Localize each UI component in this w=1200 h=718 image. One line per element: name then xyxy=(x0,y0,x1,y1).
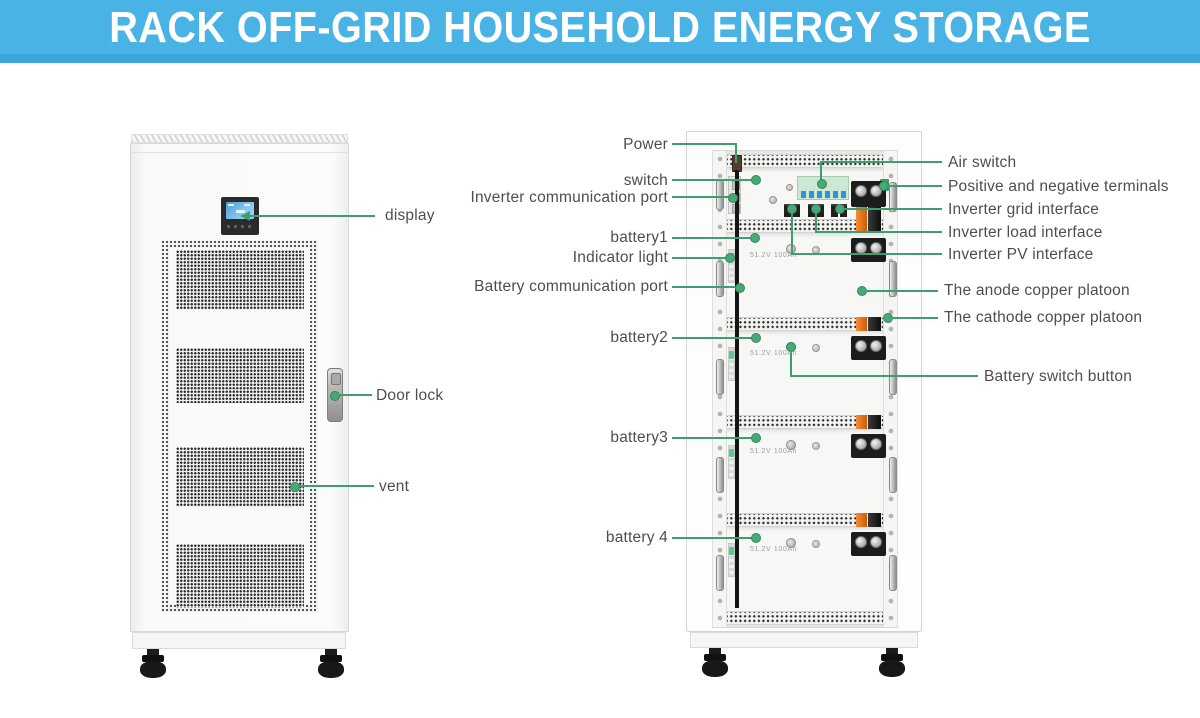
screw xyxy=(769,196,777,204)
vent-strip xyxy=(727,611,883,625)
banner-accent-strip xyxy=(0,54,1200,63)
leader-line xyxy=(672,179,752,181)
screw xyxy=(812,344,820,352)
communication-cable xyxy=(735,170,739,608)
caster-foot xyxy=(316,649,346,679)
leader-line xyxy=(340,394,372,396)
air-switch-callout-dot xyxy=(817,179,827,189)
leader-line xyxy=(892,317,938,319)
battery-terminal xyxy=(851,336,886,360)
leader-line xyxy=(672,257,727,259)
indicator-light xyxy=(729,547,734,555)
rack-handle xyxy=(716,555,724,591)
label-anode: The anode copper platoon xyxy=(944,282,1130,300)
page-title: RACK OFF-GRID HOUSEHOLD ENERGY STORAGE xyxy=(60,0,1140,54)
leader-line xyxy=(820,161,942,163)
display-buttons xyxy=(227,225,253,228)
leader-line xyxy=(300,485,374,487)
vent-panel-1 xyxy=(176,250,304,310)
rack-handle xyxy=(889,457,897,493)
label-inverter-comm-port: Inverter communication port xyxy=(470,189,668,207)
leader-line xyxy=(791,211,793,255)
leader-line xyxy=(672,237,751,239)
leader-line xyxy=(672,196,730,198)
leader-line xyxy=(866,290,938,292)
screw xyxy=(812,442,820,450)
rack-handle xyxy=(889,555,897,591)
caster-foot xyxy=(877,648,907,678)
caster-foot xyxy=(700,648,730,678)
battery4-callout-dot xyxy=(751,533,761,543)
leader-line xyxy=(815,231,942,233)
label-battery4: battery 4 xyxy=(606,529,668,547)
leader-line xyxy=(672,537,753,539)
label-battery1: battery1 xyxy=(610,229,668,247)
label-terminals: Positive and negative terminals xyxy=(948,178,1169,196)
battery2-callout-dot xyxy=(751,333,761,343)
label-grid-interface: Inverter grid interface xyxy=(948,201,1099,219)
battery-comm-callout-dot xyxy=(735,283,745,293)
label-vent: vent xyxy=(379,478,409,496)
door-lock-callout-dot xyxy=(330,391,340,401)
leader-line xyxy=(672,337,753,339)
leader-line xyxy=(248,215,375,217)
indicator-light xyxy=(729,449,734,457)
vent-callout-dot xyxy=(290,482,300,492)
vent-panel-4 xyxy=(176,544,304,608)
vent-panel-3 xyxy=(176,447,304,507)
vent-panel-2 xyxy=(176,348,304,403)
rack-handle xyxy=(716,180,724,210)
label-battery-switch: Battery switch button xyxy=(984,368,1132,386)
rack-handle xyxy=(716,359,724,395)
leader-line xyxy=(790,375,978,377)
screw xyxy=(786,184,793,191)
label-power: Power xyxy=(623,136,668,154)
leader-line xyxy=(815,211,817,233)
label-air-switch: Air switch xyxy=(948,154,1016,172)
page: RACK OFF-GRID HOUSEHOLD ENERGY STORAGE xyxy=(0,0,1200,718)
label-display: display xyxy=(385,207,435,225)
battery-terminal xyxy=(851,238,886,262)
label-pv-interface: Inverter PV interface xyxy=(948,246,1094,264)
indicator-light xyxy=(729,351,734,359)
screw xyxy=(812,540,820,548)
battery3-callout-dot xyxy=(751,433,761,443)
leader-line xyxy=(790,351,792,377)
banner: RACK OFF-GRID HOUSEHOLD ENERGY STORAGE xyxy=(0,0,1200,54)
label-door-lock: Door lock xyxy=(376,387,443,405)
cabinet-top-vent-strip xyxy=(131,134,348,143)
indicator-light-callout-dot xyxy=(725,253,735,263)
rack-handle xyxy=(716,457,724,493)
label-battery3: battery3 xyxy=(610,429,668,447)
rack-handle xyxy=(889,359,897,395)
rack-handle xyxy=(716,261,724,297)
label-battery-comm-port: Battery communication port xyxy=(474,278,668,296)
leader-line xyxy=(672,437,753,439)
battery-terminal xyxy=(851,532,886,556)
cabinet-seam xyxy=(130,152,349,153)
air-switch-breakers xyxy=(801,191,847,198)
inverter-comm-callout-dot xyxy=(728,193,738,203)
leader-line xyxy=(886,185,942,187)
leader-line xyxy=(672,143,737,145)
battery-terminal xyxy=(851,434,886,458)
battery-switch-button xyxy=(786,538,796,548)
label-battery2: battery2 xyxy=(610,329,668,347)
label-cathode: The cathode copper platoon xyxy=(944,309,1142,327)
rack-base xyxy=(690,632,918,648)
label-load-interface: Inverter load interface xyxy=(948,224,1103,242)
leader-line xyxy=(735,143,737,163)
cabinet-base xyxy=(132,632,346,649)
battery1-callout-dot xyxy=(750,233,760,243)
caster-foot xyxy=(138,649,168,679)
battery-switch-button xyxy=(786,440,796,450)
leader-line xyxy=(843,208,942,210)
switch-callout-dot xyxy=(751,175,761,185)
label-switch: switch xyxy=(624,172,668,190)
leader-line xyxy=(791,253,942,255)
label-indicator-light: Indicator light xyxy=(573,249,668,267)
leader-line xyxy=(672,286,736,288)
